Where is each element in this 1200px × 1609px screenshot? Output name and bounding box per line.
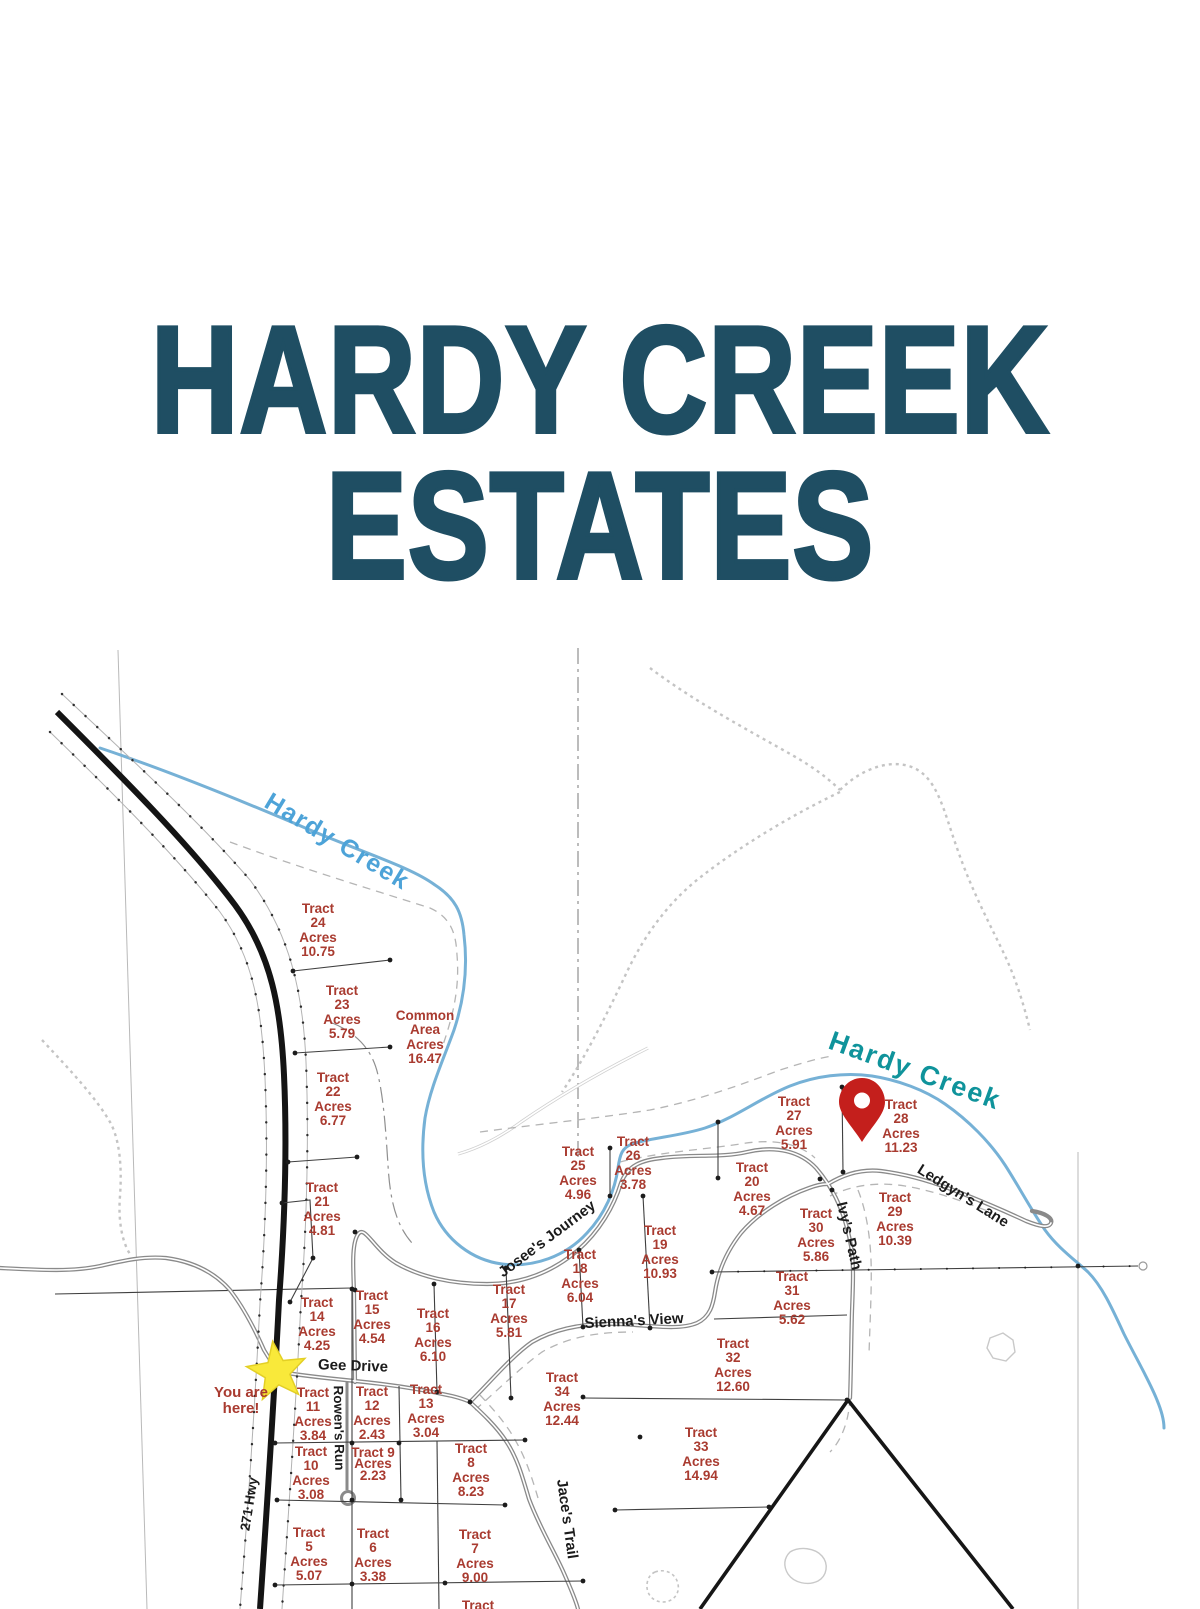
- lot-line: [293, 960, 390, 971]
- ledgyns-lane-center: [828, 1171, 1051, 1227]
- lot-line: [434, 1284, 437, 1392]
- ivys-path-path: [828, 1184, 853, 1398]
- roads: [0, 1149, 1051, 1609]
- subdivision-boundary: [700, 1400, 1013, 1609]
- lot-line: [288, 1157, 357, 1162]
- gee-drive-center: [280, 1372, 470, 1402]
- road-dash-ledgyn: [830, 1184, 990, 1212]
- line-end-marker: [1139, 1262, 1147, 1270]
- title-line-1: HARDY CREEK: [120, 308, 1080, 454]
- west-road-path: [0, 1258, 280, 1372]
- west-road-center: [0, 1258, 280, 1372]
- lot-line: [714, 1315, 847, 1319]
- flyer-page: Tract24Acres10.75Tract23Acres5.79CommonA…: [0, 0, 1200, 1609]
- lot-line: [275, 1581, 583, 1585]
- lot-line: [712, 1266, 1138, 1272]
- ivys-path-dashed-end: [830, 1398, 850, 1452]
- page-title: HARDY CREEK ESTATES: [120, 308, 1080, 600]
- highway-271: [50, 694, 307, 1609]
- jaces-trail-center: [470, 1402, 578, 1609]
- lot-line: [506, 1268, 511, 1398]
- creek-setback-dash-1: [230, 842, 458, 1045]
- title-line-2: ESTATES: [120, 454, 1080, 600]
- lot-line: [615, 1507, 769, 1510]
- trail-northeast-2: [840, 764, 1030, 1030]
- row-dashdot-curve: [330, 1022, 412, 1243]
- lot-lines: [275, 960, 1147, 1609]
- jaces-trail-path: [470, 1402, 578, 1609]
- section-line-horizontal: [55, 1288, 352, 1294]
- lot-line: [583, 1398, 847, 1400]
- trail-west: [42, 1040, 130, 1254]
- lot-line: [579, 1250, 583, 1327]
- trail-northeast-3: [562, 792, 840, 1092]
- lot-line: [295, 1047, 390, 1053]
- lot-line: [277, 1500, 505, 1505]
- plat-map: Tract24Acres10.75Tract23Acres5.79CommonA…: [0, 0, 1200, 1609]
- pond-small: [987, 1333, 1015, 1361]
- marsh-dotted: [647, 1571, 678, 1602]
- road-dash-ivy: [858, 1190, 871, 1355]
- lot-corner-dots: [273, 958, 1081, 1588]
- lot-line: [437, 1441, 439, 1609]
- lot-line: [643, 1196, 650, 1328]
- location-pin-icon: [839, 1078, 885, 1142]
- pond-lower: [785, 1549, 826, 1584]
- plat-map-canvas: [0, 0, 1200, 1609]
- trail-northeast-1: [650, 668, 840, 790]
- section-line-west: [118, 650, 147, 1609]
- creek-setback-dash-2: [480, 1056, 832, 1132]
- trails: [42, 668, 1030, 1254]
- highway-271-path: [57, 712, 285, 1609]
- ponds: [647, 1333, 1015, 1602]
- section-lines: [55, 648, 1078, 1609]
